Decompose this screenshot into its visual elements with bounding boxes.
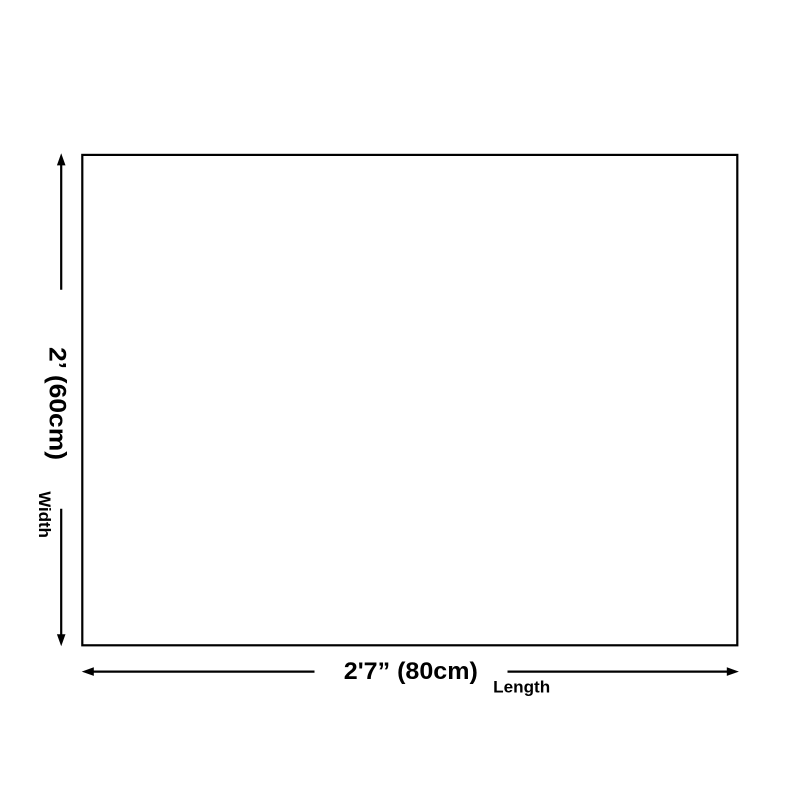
svg-text:2'7” (80cm): 2'7” (80cm)	[344, 658, 478, 685]
svg-text:Length: Length	[493, 677, 550, 696]
svg-text:2’ (60cm): 2’ (60cm)	[44, 347, 71, 460]
svg-text:Width: Width	[35, 491, 54, 538]
